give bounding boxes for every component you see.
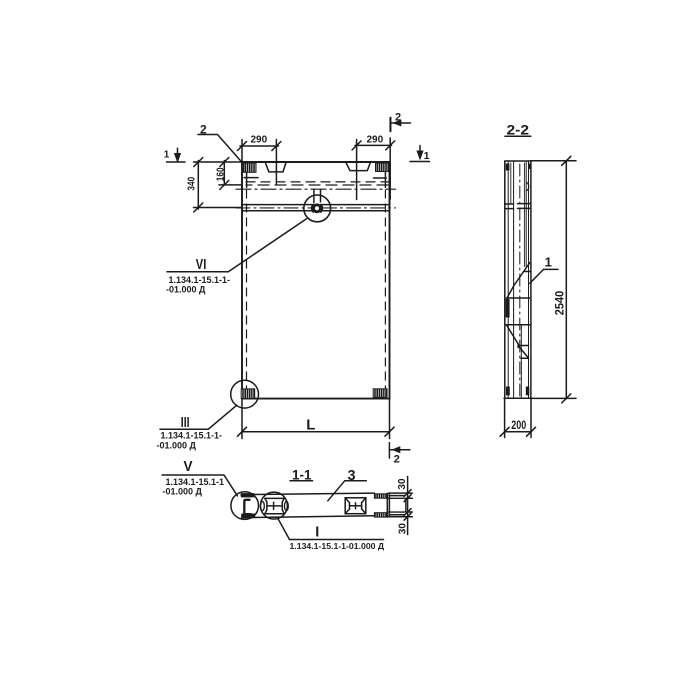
svg-text:1.134.1-15.1-1-: 1.134.1-15.1-1-	[161, 430, 223, 440]
svg-text:30: 30	[397, 523, 408, 535]
svg-text:3: 3	[348, 468, 356, 484]
svg-text:1: 1	[424, 150, 430, 162]
svg-text:VI: VI	[196, 256, 207, 273]
svg-text:-01.000 Д: -01.000 Д	[157, 440, 197, 450]
svg-text:-01.000 Д: -01.000 Д	[166, 284, 206, 294]
svg-text:160: 160	[216, 167, 227, 181]
svg-text:1.134.1-15.1-1: 1.134.1-15.1-1	[166, 477, 225, 487]
svg-text:2: 2	[394, 454, 400, 466]
svg-text:2-2: 2-2	[507, 121, 530, 137]
svg-text:290: 290	[367, 134, 384, 145]
svg-text:V: V	[184, 459, 193, 475]
svg-text:2: 2	[200, 123, 207, 137]
svg-text:30: 30	[397, 478, 408, 490]
svg-text:1-1: 1-1	[292, 466, 312, 482]
svg-text:III: III	[181, 415, 190, 431]
svg-text:1.134.1-15.1-1-: 1.134.1-15.1-1-	[169, 275, 231, 285]
svg-text:2: 2	[395, 112, 401, 124]
svg-text:2540: 2540	[553, 291, 567, 316]
svg-text:I: I	[315, 525, 319, 541]
svg-text:340: 340	[187, 176, 198, 190]
svg-text:L: L	[306, 417, 315, 434]
svg-text:200: 200	[511, 420, 526, 432]
svg-text:1.134.1-15.1-1-01.000 Д: 1.134.1-15.1-1-01.000 Д	[290, 541, 385, 551]
svg-text:1: 1	[164, 150, 170, 161]
svg-text:-01.000 Д: -01.000 Д	[163, 486, 203, 496]
svg-text:1: 1	[545, 254, 552, 269]
svg-text:290: 290	[251, 135, 268, 146]
